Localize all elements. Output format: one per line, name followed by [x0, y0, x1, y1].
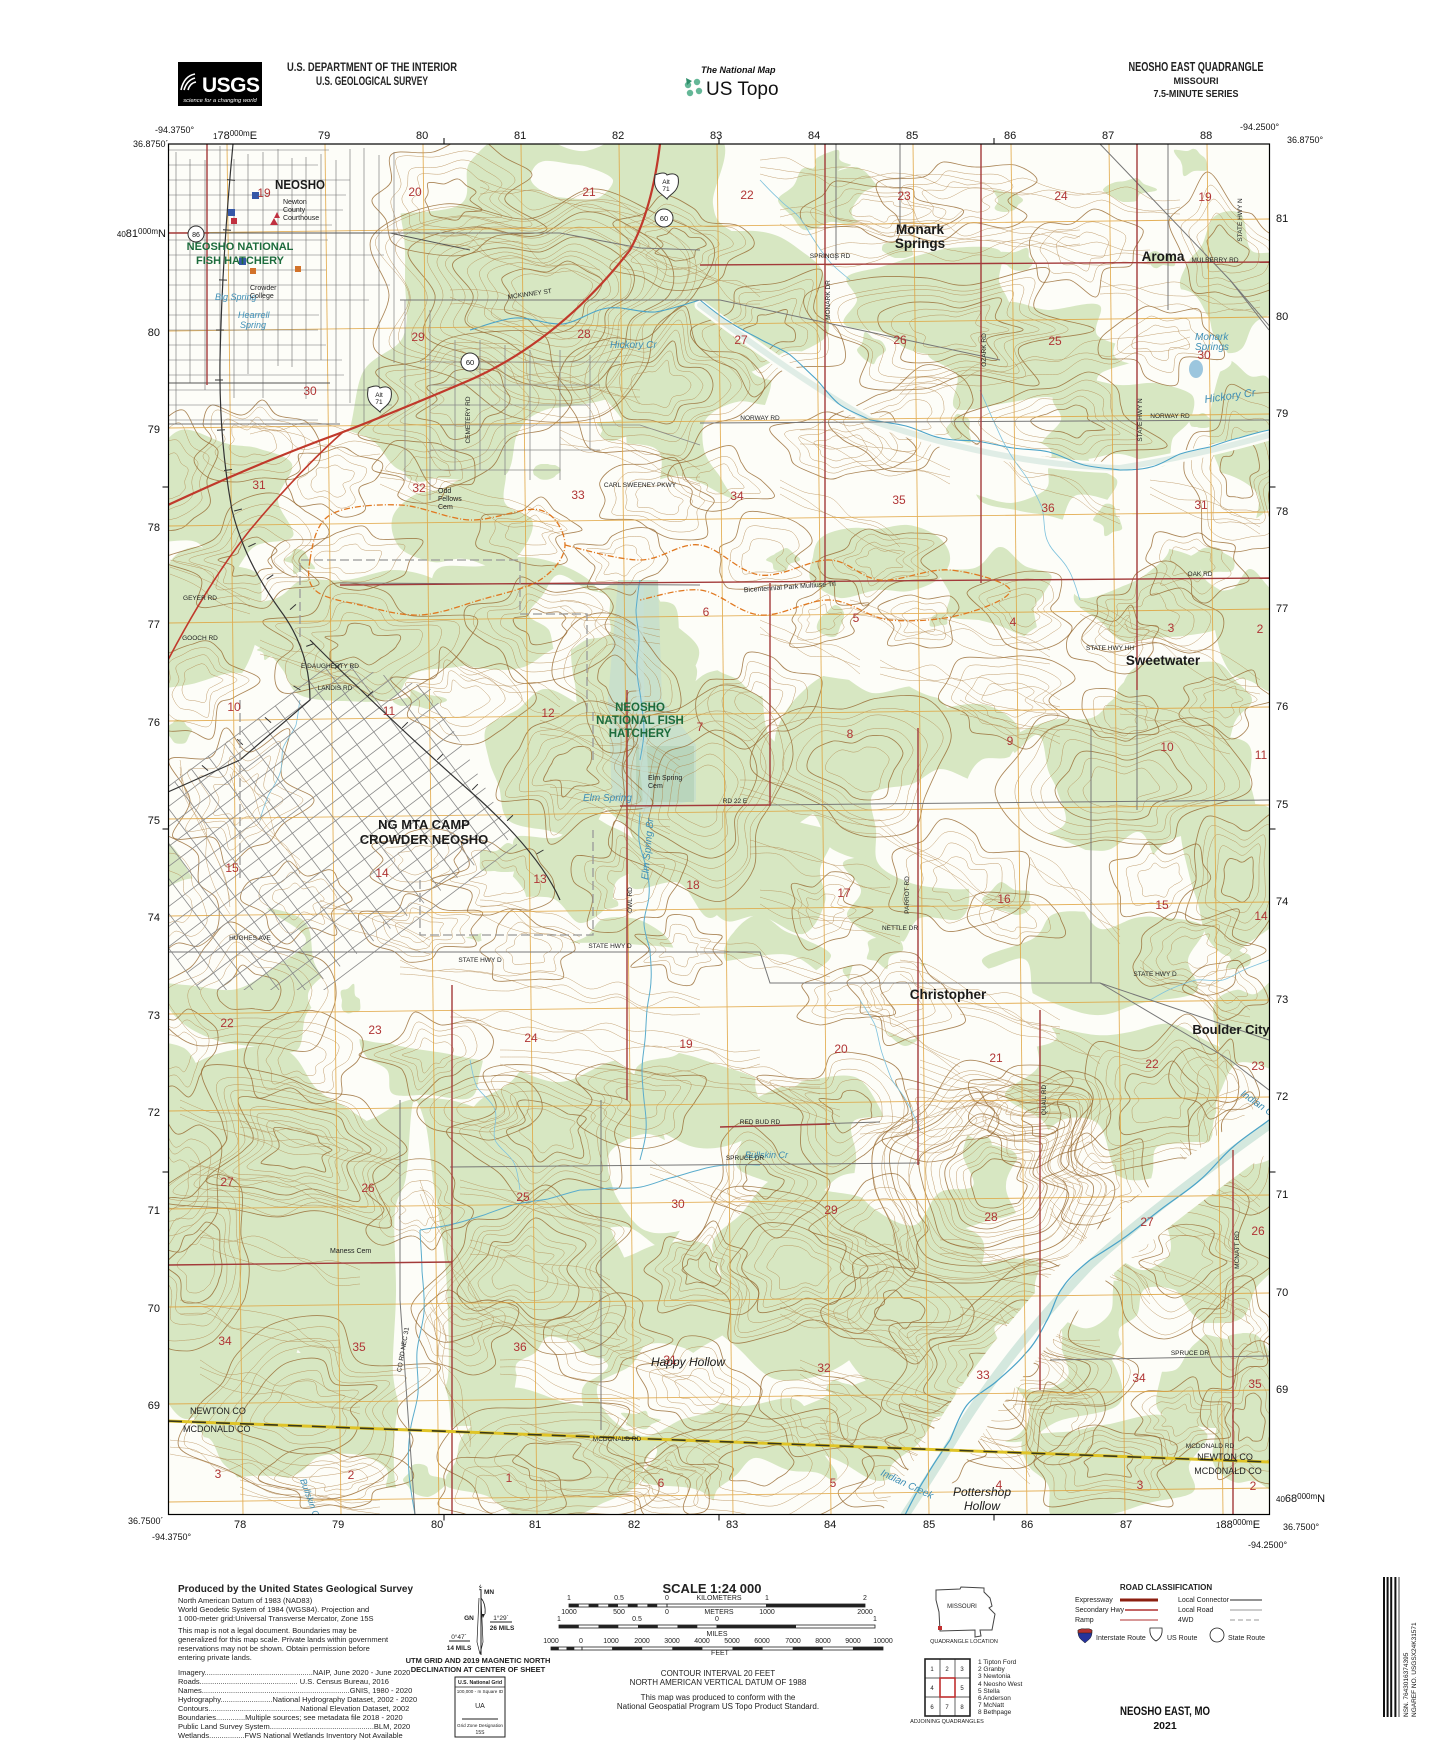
svg-text:83: 83: [726, 1519, 738, 1531]
svg-text:QUAIL RD: QUAIL RD: [1041, 1084, 1048, 1115]
svg-text:2: 2: [348, 1468, 355, 1482]
svg-text:24: 24: [1054, 189, 1068, 203]
svg-text:71: 71: [148, 1205, 160, 1217]
svg-text:9000: 9000: [845, 1638, 861, 1645]
svg-text:GN: GN: [464, 1615, 474, 1622]
svg-text:35: 35: [1248, 1377, 1262, 1391]
svg-text:11: 11: [1255, 748, 1268, 762]
svg-text:OZARK RD: OZARK RD: [981, 333, 988, 367]
svg-text:6: 6: [703, 605, 710, 619]
svg-text:7000: 7000: [785, 1638, 801, 1645]
svg-text:0: 0: [579, 1638, 583, 1645]
svg-text:U.S. GEOLOGICAL SURVEY: U.S. GEOLOGICAL SURVEY: [316, 76, 428, 88]
svg-text:74: 74: [1276, 896, 1288, 908]
svg-text:27: 27: [734, 333, 748, 347]
svg-text:Courthouse: Courthouse: [283, 215, 319, 222]
svg-text:81: 81: [1276, 213, 1288, 225]
svg-text:16: 16: [997, 892, 1011, 906]
svg-text:SPRINGS RD: SPRINGS RD: [810, 253, 851, 260]
svg-text:RD 22 E: RD 22 E: [723, 798, 748, 805]
svg-text:generalized for this map scale: generalized for this map scale. Private …: [178, 1635, 389, 1644]
svg-text:79: 79: [1276, 408, 1288, 420]
svg-text:Local Road: Local Road: [1178, 1607, 1214, 1614]
svg-text:20: 20: [408, 185, 422, 199]
svg-text:35: 35: [892, 493, 906, 507]
svg-text:FEET: FEET: [711, 1650, 730, 1657]
svg-text:Produced by the United States: Produced by the United States Geological…: [178, 1584, 413, 1595]
svg-text:NEWTON CO: NEWTON CO: [190, 1406, 246, 1416]
svg-text:Spring: Spring: [240, 320, 266, 330]
svg-text:15: 15: [1155, 898, 1169, 912]
svg-text:5: 5: [853, 611, 860, 625]
svg-text:18: 18: [686, 878, 700, 892]
svg-text:STATE HWY D: STATE HWY D: [458, 957, 502, 964]
svg-text:2: 2: [863, 1595, 867, 1602]
svg-text:80: 80: [148, 327, 160, 339]
svg-text:Ramp: Ramp: [1075, 1617, 1094, 1624]
svg-text:1 Tipton Ford: 1 Tipton Ford: [978, 1659, 1017, 1666]
svg-text:Hydrography...................: Hydrography.........................Nati…: [178, 1695, 417, 1704]
svg-text:1°29´: 1°29´: [493, 1614, 509, 1622]
svg-text:MISSOURI: MISSOURI: [947, 1604, 977, 1610]
svg-text:3: 3: [1137, 1478, 1144, 1492]
svg-text:Maness Cem: Maness Cem: [330, 1248, 371, 1255]
svg-text:reservations may not be shown.: reservations may not be shown. Obtain pe…: [178, 1644, 370, 1653]
svg-text:Aroma: Aroma: [1142, 249, 1185, 264]
svg-text:26: 26: [361, 1181, 375, 1195]
svg-text:-94.2500°: -94.2500°: [1240, 122, 1280, 132]
svg-text:7 McNatt: 7 McNatt: [978, 1702, 1004, 1709]
svg-text:78: 78: [1276, 506, 1288, 518]
svg-text:70: 70: [148, 1303, 160, 1315]
svg-text:3000: 3000: [664, 1638, 680, 1645]
svg-text:9: 9: [1007, 734, 1014, 748]
svg-text:32: 32: [817, 1361, 831, 1375]
svg-text:science for a changing world: science for a changing world: [183, 98, 257, 104]
svg-text:-94.3750°: -94.3750°: [152, 1532, 192, 1542]
svg-text:84: 84: [808, 130, 820, 142]
svg-text:GOOCH RD: GOOCH RD: [182, 635, 218, 642]
svg-text:80: 80: [1276, 311, 1288, 323]
svg-text:Roads.........................: Roads...................................…: [178, 1677, 389, 1686]
svg-text:36.8750´: 36.8750´: [133, 139, 169, 149]
svg-text:72: 72: [148, 1107, 160, 1119]
svg-text:Contours......................: Contours................................…: [178, 1704, 409, 1713]
svg-text:71: 71: [662, 186, 670, 193]
svg-text:SCALE 1:24 000: SCALE 1:24 000: [663, 1581, 762, 1596]
svg-text:10000: 10000: [873, 1638, 893, 1645]
svg-text:-94.2500°: -94.2500°: [1248, 1540, 1288, 1550]
svg-text:The National Map: The National Map: [701, 65, 776, 75]
svg-text:77: 77: [148, 619, 160, 631]
svg-text:5 Stella: 5 Stella: [978, 1688, 1000, 1695]
svg-text:QUADRANGLE LOCATION: QUADRANGLE LOCATION: [930, 1639, 998, 1645]
svg-text:CARL SWEENEY PKWY: CARL SWEENEY PKWY: [604, 482, 677, 489]
svg-text:3: 3: [215, 1467, 222, 1481]
svg-text:MILES: MILES: [706, 1631, 727, 1638]
svg-text:500: 500: [613, 1609, 625, 1616]
svg-text:83: 83: [710, 130, 722, 142]
svg-text:NEWTON CO: NEWTON CO: [1197, 1452, 1253, 1462]
svg-text:78: 78: [148, 522, 160, 534]
svg-text:34: 34: [218, 1334, 232, 1348]
svg-text:1000: 1000: [543, 1638, 559, 1645]
svg-text:36.8750°: 36.8750°: [1287, 135, 1324, 145]
svg-text:NORWAY RD: NORWAY RD: [1150, 413, 1190, 420]
svg-text:Monark: Monark: [896, 222, 945, 237]
svg-text:FISH HATCHERY: FISH HATCHERY: [196, 255, 285, 267]
svg-text:MCNATT RD: MCNATT RD: [1234, 1231, 1241, 1269]
svg-text:30: 30: [303, 384, 317, 398]
svg-text:86: 86: [1004, 130, 1016, 142]
svg-text:Alt: Alt: [662, 179, 670, 186]
svg-text:NORWAY RD: NORWAY RD: [740, 415, 780, 422]
svg-text:entering private lands.: entering private lands.: [178, 1653, 252, 1662]
svg-text:Cem: Cem: [438, 504, 453, 511]
svg-text:34: 34: [1132, 1371, 1146, 1385]
svg-text:34: 34: [730, 489, 744, 503]
svg-text:1: 1: [873, 1616, 877, 1623]
svg-text:80: 80: [416, 130, 428, 142]
svg-text:25: 25: [1048, 334, 1062, 348]
svg-text:NEOSHO EAST, MO: NEOSHO EAST, MO: [1120, 1706, 1210, 1718]
svg-text:This map was produced to confo: This map was produced to conform with th…: [641, 1693, 796, 1702]
svg-text:Expressway: Expressway: [1075, 1597, 1113, 1604]
svg-text:2000: 2000: [857, 1609, 873, 1616]
svg-text:Sweetwater: Sweetwater: [1126, 653, 1201, 668]
svg-text:71: 71: [1276, 1189, 1288, 1201]
svg-text:U.S. DEPARTMENT OF THE INTERIO: U.S. DEPARTMENT OF THE INTERIOR: [287, 62, 458, 74]
svg-text:15S: 15S: [476, 1730, 486, 1736]
svg-text:88: 88: [1200, 130, 1212, 142]
svg-text:74: 74: [148, 912, 160, 924]
svg-text:29: 29: [824, 1203, 838, 1217]
svg-text:0: 0: [665, 1595, 669, 1602]
svg-text:26: 26: [1251, 1224, 1265, 1238]
svg-text:3 Newtonia: 3 Newtonia: [978, 1673, 1011, 1680]
svg-text:CROWDER NEOSHO: CROWDER NEOSHO: [360, 832, 489, 847]
svg-text:23: 23: [1251, 1059, 1265, 1073]
svg-text:Local Connector: Local Connector: [1178, 1597, 1230, 1604]
svg-text:College: College: [250, 293, 274, 300]
svg-text:Boulder City: Boulder City: [1192, 1022, 1270, 1037]
svg-text:LANDIS RD: LANDIS RD: [318, 685, 353, 692]
svg-text:Names.........................: Names...................................…: [178, 1686, 412, 1695]
svg-text:Pottershop: Pottershop: [953, 1485, 1011, 1499]
svg-text:5000: 5000: [724, 1638, 740, 1645]
svg-text:OWL RD: OWL RD: [627, 887, 634, 913]
svg-text:28: 28: [984, 1210, 998, 1224]
svg-text:19: 19: [679, 1037, 693, 1051]
svg-text:MONARK DR: MONARK DR: [825, 280, 832, 320]
svg-text:UA: UA: [475, 1703, 485, 1710]
svg-text:Imagery.......................: Imagery.................................…: [178, 1668, 410, 1677]
svg-text:20: 20: [834, 1042, 848, 1056]
svg-text:MULBERRY RD: MULBERRY RD: [1191, 257, 1238, 264]
svg-text:19: 19: [1198, 190, 1212, 204]
svg-text:7.5-MINUTE SERIES: 7.5-MINUTE SERIES: [1154, 89, 1239, 100]
svg-text:26 MILS: 26 MILS: [490, 1625, 515, 1632]
svg-text:69: 69: [1276, 1384, 1288, 1396]
svg-text:Newton: Newton: [283, 199, 307, 206]
svg-text:Interstate Route: Interstate Route: [1096, 1635, 1146, 1642]
svg-text:69: 69: [148, 1400, 160, 1412]
svg-text:11: 11: [383, 704, 396, 718]
svg-text:MCDONALD CO: MCDONALD CO: [183, 1424, 251, 1434]
svg-text:NEOSHO EAST QUADRANGLE: NEOSHO EAST QUADRANGLE: [1129, 59, 1264, 74]
svg-text:81: 81: [514, 130, 526, 142]
svg-text:Hickory Cr: Hickory Cr: [610, 340, 657, 351]
svg-text:KILOMETERS: KILOMETERS: [696, 1595, 741, 1602]
svg-text:21: 21: [582, 185, 596, 199]
svg-text:North American Datum of 1983 (: North American Datum of 1983 (NAD83): [178, 1596, 313, 1605]
svg-text:CEMETERY RD: CEMETERY RD: [465, 396, 472, 443]
svg-text:79: 79: [318, 130, 330, 142]
svg-text:10: 10: [1160, 740, 1174, 754]
svg-text:US Topo: US Topo: [706, 79, 779, 100]
svg-text:4000: 4000: [694, 1638, 710, 1645]
svg-text:82: 82: [628, 1519, 640, 1531]
svg-text:1 000-meter grid:Universal Tra: 1 000-meter grid:Universal Transverse Me…: [178, 1614, 374, 1623]
svg-text:33: 33: [976, 1368, 990, 1382]
svg-text:4WD: 4WD: [1178, 1617, 1194, 1624]
svg-text:0°47´: 0°47´: [451, 1633, 467, 1641]
svg-text:1000: 1000: [603, 1638, 619, 1645]
svg-text:Odd: Odd: [438, 488, 451, 495]
svg-text:73: 73: [1276, 994, 1288, 1006]
svg-text:76: 76: [1276, 701, 1288, 713]
svg-text:15: 15: [225, 861, 239, 875]
svg-text:Happy Hollow: Happy Hollow: [651, 1355, 726, 1369]
svg-text:0: 0: [665, 1609, 669, 1616]
svg-text:Boundaries..............Multip: Boundaries..............Multiple sources…: [178, 1713, 403, 1722]
svg-text:84: 84: [824, 1519, 836, 1531]
svg-text:77: 77: [1276, 603, 1288, 615]
svg-text:1: 1: [567, 1595, 571, 1602]
svg-text:35: 35: [352, 1340, 366, 1354]
svg-text:13: 13: [533, 872, 547, 886]
svg-text:60: 60: [466, 358, 474, 367]
svg-text:Springs: Springs: [1195, 342, 1229, 353]
svg-text:NSN. 7643016374395: NSN. 7643016374395: [1403, 1652, 1410, 1717]
svg-text:MN: MN: [484, 1589, 494, 1596]
svg-text:0.5: 0.5: [614, 1595, 624, 1602]
svg-text:MISSOURI: MISSOURI: [1174, 76, 1219, 86]
svg-text:MCDONALD RD: MCDONALD RD: [593, 1436, 642, 1443]
svg-text:85: 85: [923, 1519, 935, 1531]
svg-text:Hollow: Hollow: [964, 1499, 1001, 1513]
svg-text:Public Land Survey System..: Public Land Survey System...............…: [178, 1722, 410, 1731]
svg-text:29: 29: [411, 330, 425, 344]
svg-text:80: 80: [431, 1519, 443, 1531]
svg-text:100,000 - m Square ID: 100,000 - m Square ID: [457, 1689, 504, 1694]
svg-text:Crowder: Crowder: [250, 285, 277, 292]
svg-text:World Geodetic System of 1984: World Geodetic System of 1984 (WGS84). P…: [178, 1605, 369, 1614]
svg-text:86: 86: [1021, 1519, 1033, 1531]
svg-text:ROAD CLASSIFICATION: ROAD CLASSIFICATION: [1120, 1583, 1213, 1592]
svg-text:78: 78: [234, 1519, 246, 1531]
svg-text:USGS: USGS: [202, 74, 260, 97]
svg-text:NG MTA CAMP: NG MTA CAMP: [378, 817, 470, 832]
svg-text:Secondary Hwy: Secondary Hwy: [1075, 1607, 1125, 1614]
svg-text:NEOSHO: NEOSHO: [615, 702, 665, 714]
svg-text:National Geospatial Program US: National Geospatial Program US Topo Prod…: [617, 1702, 819, 1711]
svg-text:85: 85: [906, 130, 918, 142]
svg-text:Elm Spring: Elm Spring: [583, 793, 632, 804]
svg-text:-94.3750°: -94.3750°: [155, 125, 195, 135]
svg-text:HATCHERY: HATCHERY: [609, 728, 672, 740]
svg-text:14: 14: [1254, 909, 1268, 923]
svg-text:27: 27: [1140, 1215, 1154, 1229]
svg-text:NETTLE DR: NETTLE DR: [882, 925, 918, 932]
svg-text:Cem: Cem: [648, 783, 663, 790]
svg-text:87: 87: [1120, 1519, 1132, 1531]
svg-text:26: 26: [893, 333, 907, 347]
svg-text:36.7500°: 36.7500°: [1283, 1522, 1320, 1532]
svg-text:17: 17: [837, 886, 851, 900]
svg-text:1: 1: [557, 1616, 561, 1623]
svg-text:6: 6: [658, 1476, 665, 1490]
svg-text:Alt: Alt: [375, 392, 383, 399]
svg-text:U.S. National Grid: U.S. National Grid: [458, 1680, 502, 1686]
svg-text:3: 3: [1168, 621, 1175, 635]
svg-text:SPRUCE DR: SPRUCE DR: [726, 1155, 765, 1162]
svg-text:86: 86: [192, 232, 200, 239]
svg-text:8: 8: [847, 727, 854, 741]
svg-text:4 Neosho West: 4 Neosho West: [978, 1681, 1023, 1688]
svg-text:72: 72: [1276, 1091, 1288, 1103]
svg-text:NGAREF NO. USGSX24K31571: NGAREF NO. USGSX24K31571: [1411, 1622, 1418, 1717]
svg-text:0: 0: [715, 1616, 719, 1623]
svg-text:22: 22: [740, 188, 754, 202]
svg-text:RED BUD RD: RED BUD RD: [740, 1119, 781, 1126]
svg-text:33: 33: [571, 488, 585, 502]
svg-text:2: 2: [1257, 622, 1264, 636]
svg-text:71: 71: [375, 399, 383, 406]
svg-text:60: 60: [660, 214, 668, 223]
svg-text:US Route: US Route: [1167, 1635, 1197, 1642]
svg-text:1: 1: [765, 1595, 769, 1602]
svg-text:1: 1: [506, 1471, 513, 1485]
svg-text:Christopher: Christopher: [910, 987, 987, 1002]
svg-text:75: 75: [1276, 799, 1288, 811]
svg-text:28: 28: [577, 327, 591, 341]
svg-text:2021: 2021: [1153, 1720, 1177, 1732]
svg-text:SPRUCE DR: SPRUCE DR: [1171, 1350, 1210, 1357]
svg-text:10: 10: [227, 700, 241, 714]
svg-text:0.5: 0.5: [632, 1616, 642, 1623]
svg-text:Grid Zone Designation: Grid Zone Designation: [457, 1723, 503, 1728]
svg-text:2 Granby: 2 Granby: [978, 1666, 1005, 1673]
svg-text:14 MILS: 14 MILS: [447, 1645, 472, 1652]
svg-text:25: 25: [516, 1190, 530, 1204]
svg-text:METERS: METERS: [704, 1609, 734, 1616]
svg-text:73: 73: [148, 1010, 160, 1022]
svg-text:MCDONALD CO: MCDONALD CO: [1194, 1466, 1262, 1476]
svg-text:23: 23: [897, 189, 911, 203]
svg-text:36.7500´: 36.7500´: [128, 1516, 164, 1526]
svg-text:STATE HWY D: STATE HWY D: [1133, 971, 1177, 978]
svg-text:2: 2: [1250, 1479, 1257, 1493]
svg-text:DECLINATION AT CENTER OF SHEET: DECLINATION AT CENTER OF SHEET: [411, 1665, 546, 1674]
svg-text:36: 36: [513, 1340, 527, 1354]
svg-text:Fellows: Fellows: [438, 496, 462, 503]
svg-text:79: 79: [332, 1519, 344, 1531]
svg-text:31: 31: [1194, 498, 1208, 512]
svg-text:6000: 6000: [754, 1638, 770, 1645]
svg-text:79: 79: [148, 424, 160, 436]
svg-text:27: 27: [220, 1175, 234, 1189]
svg-text:Wetlands.................FWS: Wetlands.................FWS National We…: [178, 1731, 403, 1740]
svg-text:PARROT RD: PARROT RD: [904, 876, 911, 914]
svg-text:32: 32: [412, 481, 426, 495]
svg-text:19: 19: [257, 186, 271, 200]
svg-text:NORTH AMERICAN VERTICAL DATUM: NORTH AMERICAN VERTICAL DATUM OF 1988: [630, 1678, 807, 1687]
svg-text:22: 22: [220, 1016, 234, 1030]
svg-text:31: 31: [252, 478, 266, 492]
svg-text:HUGHES AVE: HUGHES AVE: [229, 935, 271, 942]
svg-text:Elm Spring: Elm Spring: [648, 775, 682, 782]
svg-text:8000: 8000: [815, 1638, 831, 1645]
svg-text:STATE HWY D: STATE HWY D: [588, 943, 632, 950]
svg-text:NATIONAL FISH: NATIONAL FISH: [596, 715, 684, 727]
svg-text:NEOSHO NATIONAL: NEOSHO NATIONAL: [187, 241, 294, 253]
svg-text:75: 75: [148, 815, 160, 827]
svg-text:70: 70: [1276, 1287, 1288, 1299]
svg-text:22: 22: [1145, 1057, 1159, 1071]
svg-text:5: 5: [830, 1476, 837, 1490]
svg-text:MCDONALD RD: MCDONALD RD: [1186, 1443, 1235, 1450]
svg-text:STATE HWY N: STATE HWY N: [1137, 398, 1144, 442]
svg-text:12: 12: [541, 706, 555, 720]
svg-text:2000: 2000: [634, 1638, 650, 1645]
svg-text:Hearrell: Hearrell: [238, 310, 271, 320]
svg-text:7: 7: [697, 720, 704, 734]
svg-text:UTM GRID AND 2019 MAGNETIC NOR: UTM GRID AND 2019 MAGNETIC NORTH: [406, 1656, 551, 1665]
svg-text:County: County: [283, 207, 306, 214]
svg-text:E DAUGHERTY RD: E DAUGHERTY RD: [301, 663, 359, 670]
svg-text:State Route: State Route: [1228, 1635, 1265, 1642]
svg-text:23: 23: [368, 1023, 382, 1037]
svg-text:This map is not a legal docume: This map is not a legal document. Bounda…: [178, 1626, 357, 1635]
svg-text:ADJOINING QUADRANGLES: ADJOINING QUADRANGLES: [910, 1719, 984, 1725]
svg-text:24: 24: [524, 1031, 538, 1045]
svg-text:76: 76: [148, 717, 160, 729]
svg-text:36: 36: [1041, 501, 1055, 515]
svg-text:30: 30: [671, 1197, 685, 1211]
svg-text:Springs: Springs: [895, 236, 945, 251]
svg-text:STATE HWY HH: STATE HWY HH: [1086, 645, 1134, 652]
svg-text:6 Anderson: 6 Anderson: [978, 1695, 1011, 1702]
svg-text:1000: 1000: [759, 1609, 775, 1616]
svg-text:OAK RD: OAK RD: [1188, 571, 1213, 578]
svg-text:21: 21: [989, 1051, 1003, 1065]
svg-text:82: 82: [612, 130, 624, 142]
svg-text:1000: 1000: [561, 1609, 577, 1616]
svg-text:CONTOUR INTERVAL 20 FEET: CONTOUR INTERVAL 20 FEET: [661, 1669, 776, 1678]
svg-text:NEOSHO: NEOSHO: [275, 177, 325, 192]
svg-text:14: 14: [375, 866, 389, 880]
svg-text:GEYER RD: GEYER RD: [183, 595, 217, 602]
svg-text:STATE HWY N: STATE HWY N: [1237, 198, 1244, 242]
svg-text:87: 87: [1102, 130, 1114, 142]
svg-text:8 Bethpage: 8 Bethpage: [978, 1709, 1012, 1716]
svg-text:81: 81: [529, 1519, 541, 1531]
svg-text:4: 4: [1010, 615, 1017, 629]
